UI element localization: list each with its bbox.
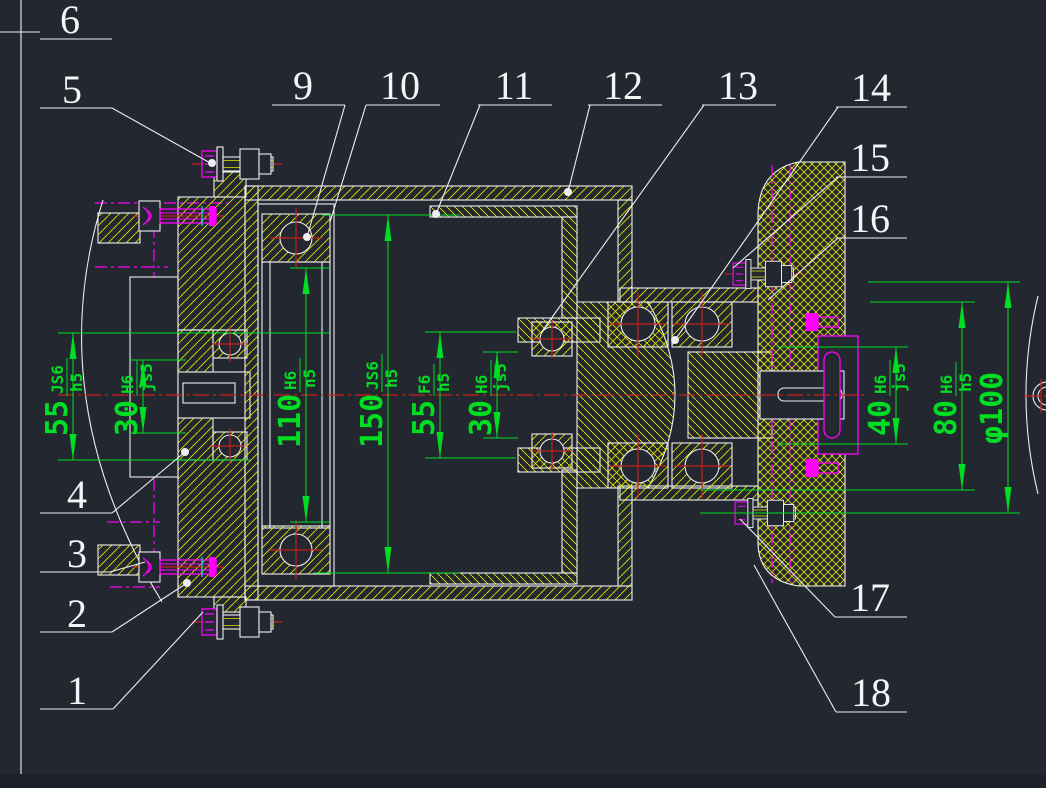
- gear-bearing-top: [262, 208, 330, 268]
- part-label-4[interactable]: 4: [40, 472, 112, 517]
- svg-text:φ100: φ100: [975, 372, 1010, 444]
- svg-text:2: 2: [67, 591, 87, 636]
- dim-30-mid[interactable]: 30 H6 js5: [464, 360, 510, 436]
- svg-text:14: 14: [851, 65, 891, 110]
- svg-text:h5: h5: [434, 373, 453, 392]
- part-label-2[interactable]: 2: [40, 591, 112, 636]
- svg-text:H6: H6: [871, 375, 890, 394]
- svg-text:H6: H6: [937, 375, 956, 394]
- svg-text:55: 55: [40, 400, 75, 436]
- svg-text:150: 150: [355, 394, 390, 448]
- part-label-1[interactable]: 1: [40, 668, 113, 713]
- part-label-15[interactable]: 15: [836, 135, 907, 180]
- svg-text:5: 5: [62, 67, 82, 112]
- flange-bearing-top: [212, 326, 248, 362]
- canvas-edge-strip: [0, 774, 1046, 788]
- svg-text:12: 12: [603, 63, 643, 108]
- part-label-11[interactable]: 11: [478, 63, 552, 108]
- part-label-10[interactable]: 10: [366, 63, 440, 108]
- svg-text:1: 1: [67, 668, 87, 713]
- part-label-17[interactable]: 17: [835, 575, 907, 620]
- dim-80[interactable]: 80 H6 h5: [929, 362, 975, 436]
- svg-text:js5: js5: [890, 363, 909, 392]
- svg-text:6: 6: [60, 0, 80, 42]
- svg-text:15: 15: [850, 135, 890, 180]
- svg-text:n5: n5: [300, 369, 319, 388]
- svg-text:40: 40: [863, 400, 898, 436]
- svg-text:10: 10: [380, 63, 420, 108]
- svg-text:JS6: JS6: [48, 365, 67, 394]
- dim-40[interactable]: 40 H6 js5: [863, 360, 909, 436]
- svg-text:H6: H6: [118, 375, 137, 394]
- svg-text:h5: h5: [67, 373, 86, 392]
- shaft-bearing-left-bottom: [532, 432, 572, 470]
- svg-text:3: 3: [67, 531, 87, 576]
- svg-text:13: 13: [718, 63, 758, 108]
- cad-drawing-viewport[interactable]: 55 JS6 h5 30 H6 js5 110 H6 n5 150 JS6 h5…: [0, 0, 1046, 788]
- svg-text:11: 11: [495, 63, 534, 108]
- svg-text:30: 30: [110, 400, 145, 436]
- part-label-9[interactable]: 9: [272, 63, 345, 108]
- svg-text:h5: h5: [956, 373, 975, 392]
- svg-text:9: 9: [293, 63, 313, 108]
- part-label-5[interactable]: 5: [40, 67, 112, 112]
- svg-text:55: 55: [407, 400, 442, 436]
- shaft-end-view: [1024, 296, 1046, 494]
- svg-text:16: 16: [850, 196, 890, 241]
- svg-text:4: 4: [67, 472, 87, 517]
- part-label-14[interactable]: 14: [836, 65, 907, 110]
- svg-text:F6: F6: [415, 375, 434, 394]
- svg-text:80: 80: [929, 400, 964, 436]
- gear-bearing-bottom: [262, 520, 330, 580]
- flange-bearing-bottom: [212, 428, 248, 464]
- svg-text:JS6: JS6: [363, 361, 382, 390]
- drawing-canvas[interactable]: 55 JS6 h5 30 H6 js5 110 H6 n5 150 JS6 h5…: [0, 0, 1046, 788]
- dim-phi100[interactable]: φ100: [975, 372, 1010, 444]
- svg-text:h5: h5: [382, 369, 401, 388]
- svg-text:H6: H6: [472, 375, 491, 394]
- part-label-12[interactable]: 12: [588, 63, 662, 108]
- part-label-16[interactable]: 16: [836, 196, 907, 241]
- dim-55-left[interactable]: 55 JS6 h5: [40, 358, 86, 436]
- svg-text:18: 18: [851, 670, 891, 715]
- svg-text:17: 17: [850, 575, 890, 620]
- part-label-18[interactable]: 18: [836, 670, 907, 715]
- dim-55-mid[interactable]: 55 F6 h5: [407, 364, 453, 436]
- svg-text:110: 110: [273, 394, 308, 448]
- svg-text:js5: js5: [491, 363, 510, 392]
- svg-text:H6: H6: [281, 371, 300, 390]
- part-label-13[interactable]: 13: [702, 63, 776, 108]
- shaft-bearing-left-top: [532, 320, 572, 358]
- svg-text:js5: js5: [137, 363, 156, 392]
- svg-text:30: 30: [464, 400, 499, 436]
- dim-150[interactable]: 150 JS6 h5: [355, 354, 401, 448]
- part-label-6[interactable]: 6: [40, 0, 112, 42]
- sheet-border: [0, 0, 40, 788]
